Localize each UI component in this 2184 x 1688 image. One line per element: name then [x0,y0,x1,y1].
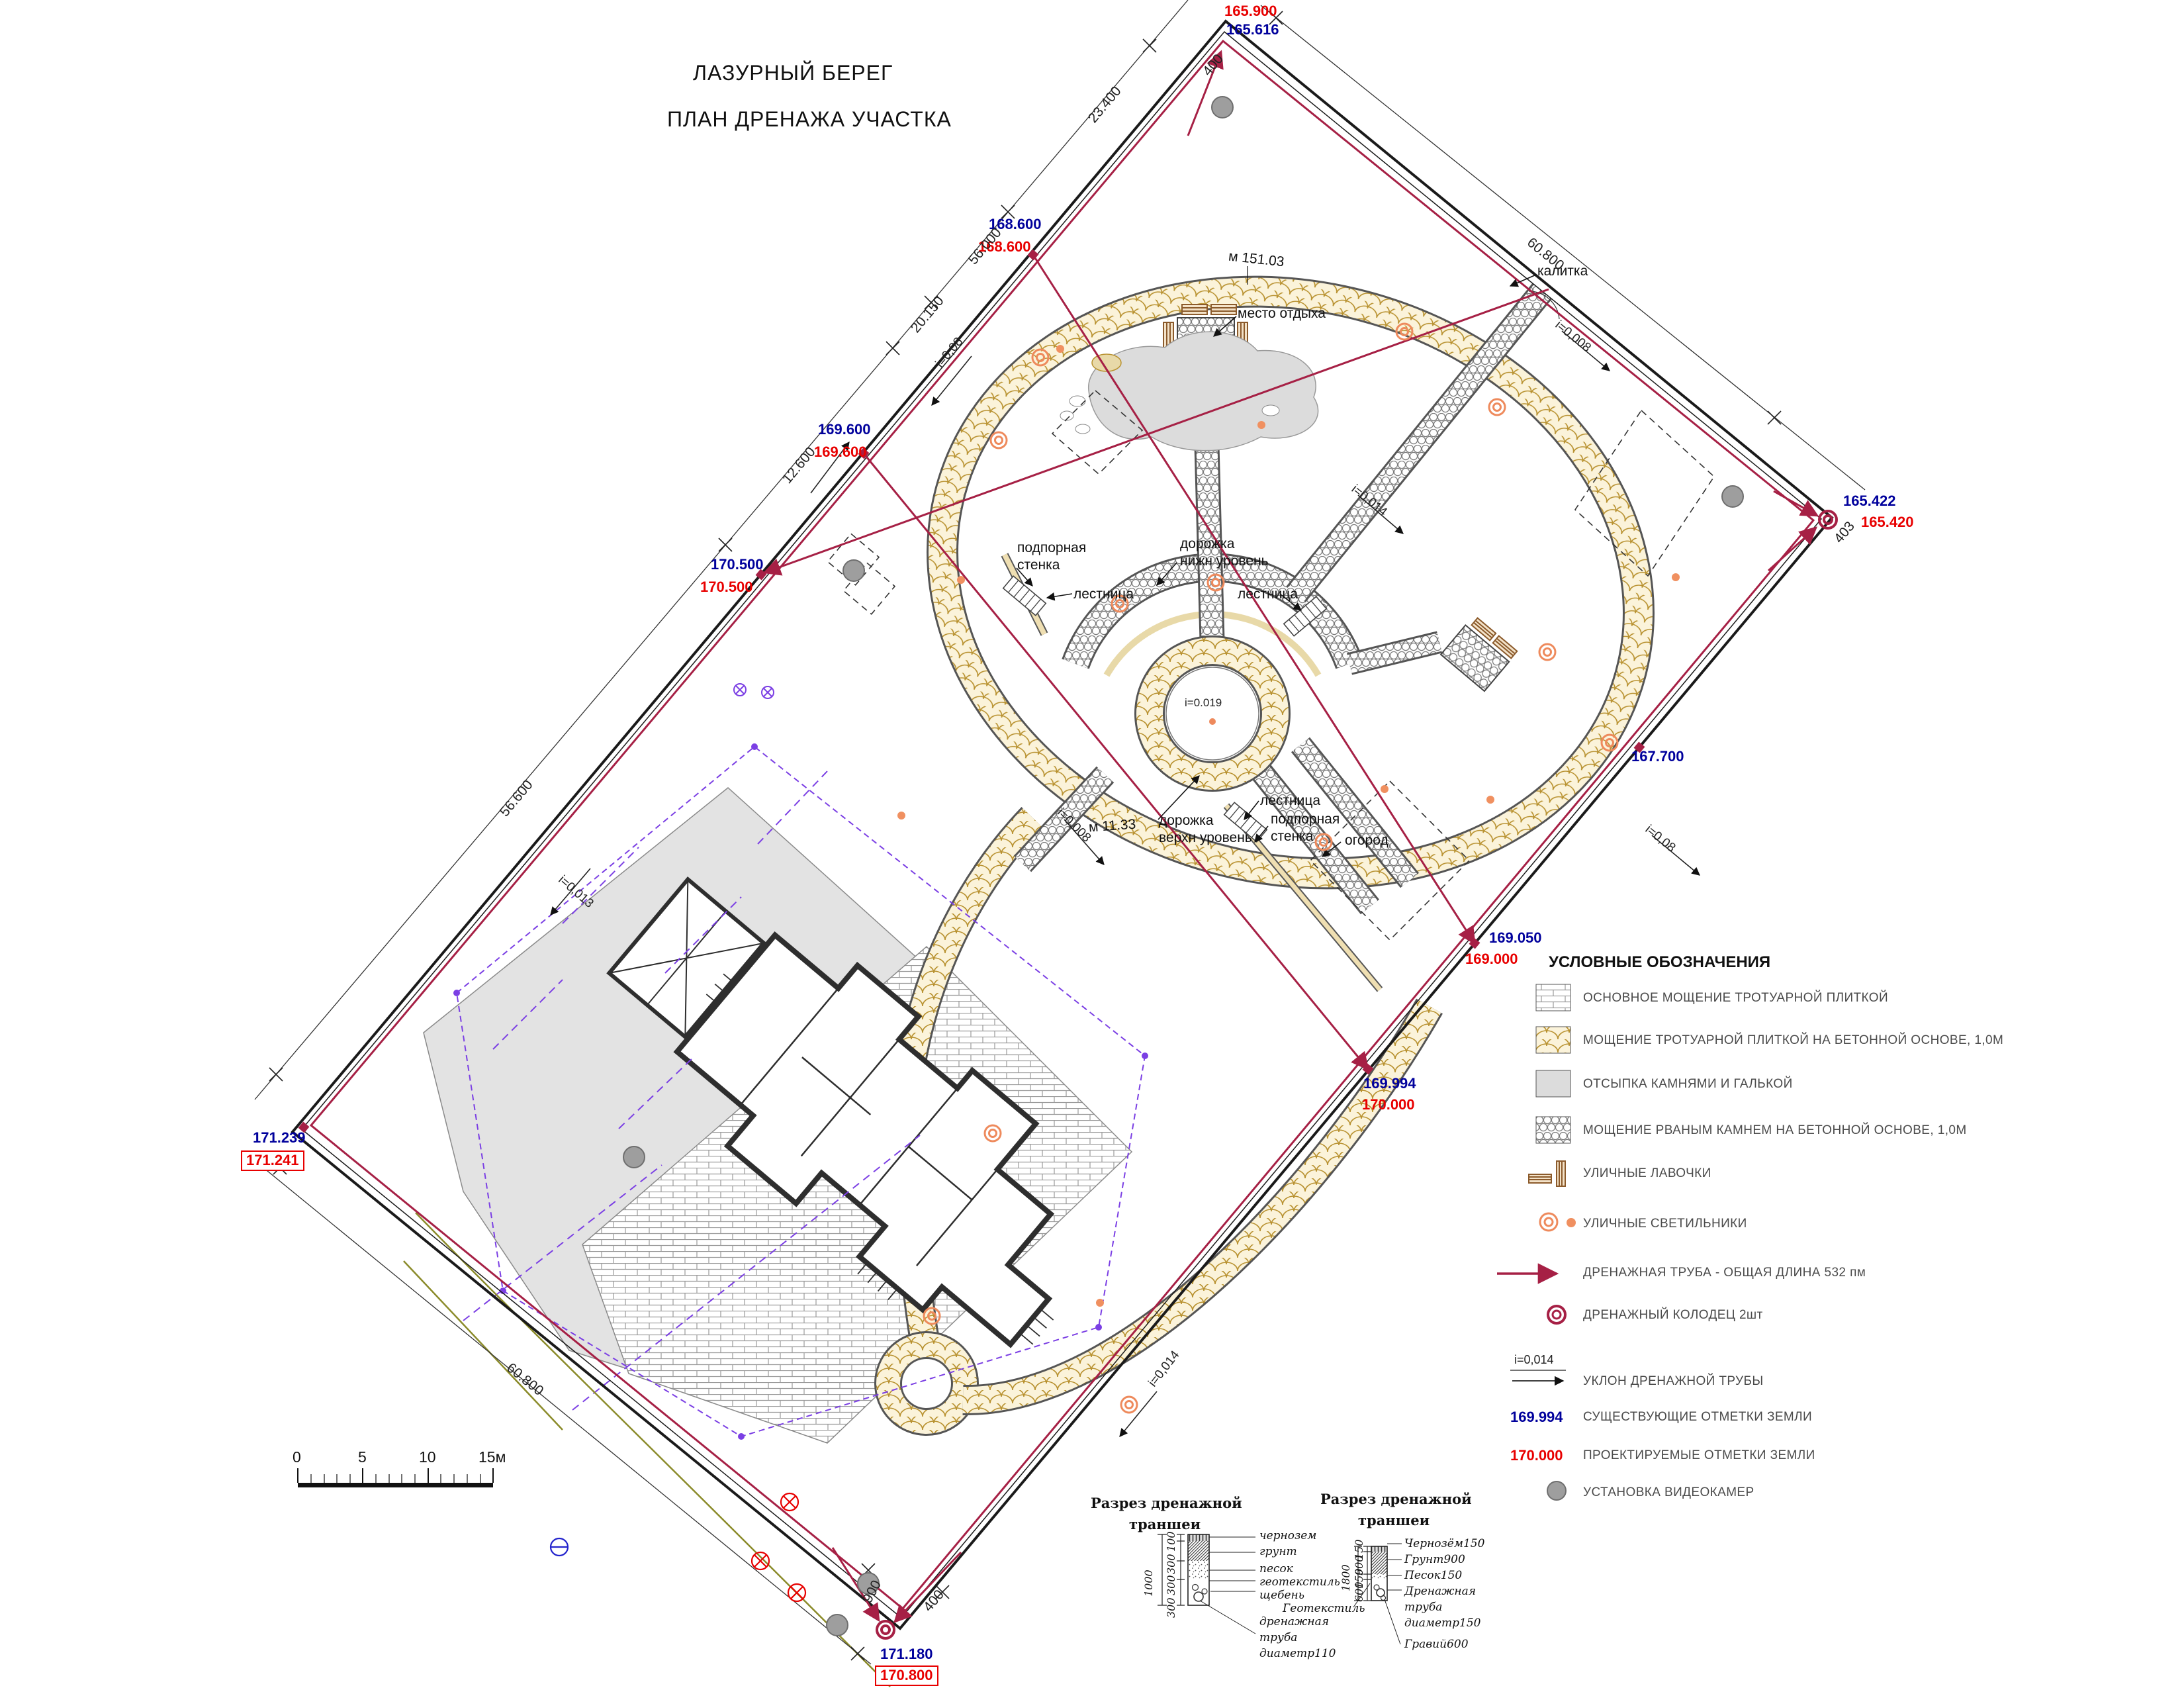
elev-top-design: 165.900 [1224,3,1277,20]
camera-icon [843,560,864,581]
street-light-icon [1121,1397,1137,1413]
label-walk-upper-b: верхн уровень [1159,830,1252,846]
legend-item-label: ДРЕНАЖНЫЙ КОЛОДЕЦ 2шт [1583,1308,1763,1323]
elev-e2-existing: 169.600 [818,421,871,438]
label-retaining-wall-2a: подпорная [1271,812,1340,827]
scalebar-5: 5 [358,1448,367,1466]
sheet-title-line1: ЛАЗУРНЫЙ БЕРЕГ [693,61,893,85]
elev-e6-existing: 167.700 [1631,748,1684,765]
violet-flower-symbol [734,684,774,698]
legend-swatch-brick [1535,984,1571,1011]
legend-item-label: ОСНОВНОЕ МОЩЕНИЕ ТРОТУАРНОЙ ПЛИТКОЙ [1583,991,1888,1006]
elev-e9-existing: 171.180 [880,1646,933,1663]
legend-item-label: УСТАНОВКА ВИДЕОКАМЕР [1583,1485,1754,1500]
legend-title: УСЛОВНЫЕ ОБОЗНАЧЕНИЯ [1549,953,1770,972]
scalebar-15: 15м [478,1448,506,1466]
section2-layer-pesok: Песок150 [1404,1569,1462,1582]
legend-item-label: ДРЕНАЖНАЯ ТРУБА - ОБЩАЯ ДЛИНА 532 пм [1583,1266,1866,1280]
scale-bar [298,1468,493,1487]
elev-e2-design: 169.600 [814,444,867,461]
scalebar-0: 0 [293,1448,301,1466]
section2-layer-chernozem: Чернозём150 [1404,1537,1484,1550]
elev-e8-design: 170.000 [1362,1096,1415,1113]
elev-e7-design: 169.000 [1465,951,1518,968]
camera-icon [827,1615,848,1636]
elev-e3-design: 170.500 [700,579,753,596]
camera-icon [1722,486,1743,507]
legend-item-label: МОЩЕНИЕ ТРОТУАРНОЙ ПЛИТКОЙ НА БЕТОННОЙ О… [1583,1033,2003,1048]
label-vegetable-garden: огород [1345,833,1388,849]
sheet-title-line2: ПЛАН ДРЕНАЖА УЧАСТКА [667,107,952,132]
section1-layer-geotextile: геотекстиль [1259,1575,1340,1589]
label-slope-center: i=0.019 [1185,696,1222,710]
elev-top-existing: 165.616 [1226,21,1279,38]
label-walk-lower-a: дорожка [1180,536,1234,552]
label-retaining-wall-2b: стенка [1271,829,1314,845]
section2-pipe-line2: труба [1404,1601,1442,1614]
legend-swatch-scale [1535,1026,1571,1054]
elev-e7-existing: 169.050 [1489,929,1542,947]
legend-bench-icon [1527,1158,1574,1189]
legend-swatch-hex [1535,1116,1571,1144]
camera-icon [1212,97,1233,118]
legend-item-label: ОТСЫПКА КАМНЯМИ И ГАЛЬКОЙ [1583,1077,1793,1092]
drain-well-icon [877,1621,894,1638]
red-cross-symbol [752,1493,805,1601]
street-light-icon [1539,644,1555,660]
legend-item-label: УЛИЧНЫЕ СВЕТИЛЬНИКИ [1583,1217,1747,1231]
central-circle [1150,651,1275,776]
section2-layer-grunt: Грунт900 [1404,1553,1465,1566]
section2-pipe-line1: Дренажная [1404,1585,1476,1598]
section1-dim2: 300 [1165,1554,1177,1574]
section2-dim-total: 1800 [1340,1564,1352,1591]
street-light-icon [1489,399,1505,415]
street-light-icon [991,432,1007,448]
section1-dim-total: 1000 [1142,1570,1155,1597]
elev-e9-design-boxed: 170.800 [875,1665,938,1686]
section1-layer-chernozem: чернозем [1259,1529,1316,1542]
label-retaining-wall-1a: подпорная [1017,540,1086,556]
rock-garden [1060,332,1318,451]
elev-e4-existing: 171.239 [253,1129,306,1147]
label-stairs-1: лестница [1073,586,1134,602]
legend-existing-value: 169.994 [1510,1409,1563,1426]
section2-layer-geotextile: Геотекстиль [1283,1602,1365,1615]
section1-pipe-line1: дренажная [1259,1615,1329,1628]
label-path-length-1133: м 11.33 [1088,817,1136,836]
section1-pipe-line2: труба [1259,1631,1297,1644]
legend-item-label: УКЛОН ДРЕНАЖНОЙ ТРУБЫ [1583,1374,1764,1389]
section1-title-line2: траншеи [1129,1516,1201,1532]
legend-item-label: СУЩЕСТВУЮЩИЕ ОТМЕТКИ ЗЕМЛИ [1583,1410,1812,1425]
legend-swatch-grey [1535,1070,1571,1098]
label-stairs-2: лестница [1238,586,1298,602]
section1-dim3: 300 [1165,1575,1177,1595]
legend-item-label: УЛИЧНЫЕ ЛАВОЧКИ [1583,1166,1711,1181]
section2-title-line2: траншеи [1358,1512,1430,1528]
legend-light-icon [1537,1210,1586,1234]
legend-well-icon [1545,1303,1569,1327]
section1-layer-shcheben: щебень [1259,1589,1304,1602]
bench-cluster [1441,615,1518,691]
label-retaining-wall-1b: стенка [1017,557,1060,573]
camera-icon [623,1147,645,1168]
section2-title-line1: Разрез дренажной [1320,1491,1472,1507]
elev-e5-design: 165.420 [1861,514,1914,531]
site-plan-drawing [0,0,2184,1688]
section2-layer-gravel: Гравий600 [1404,1638,1469,1651]
elev-e4-design-boxed: 171.241 [241,1150,304,1171]
label-walk-upper-a: дорожка [1159,813,1213,829]
section1-layer-grunt: грунт [1259,1545,1297,1558]
legend-item-label: ПРОЕКТИРУЕМЫЕ ОТМЕТКИ ЗЕМЛИ [1583,1448,1815,1463]
section2-dim4: 600 [1353,1581,1365,1602]
legend-item-label: МОЩЕНИЕ РВАНЫМ КАМНЕМ НА БЕТОННОЙ ОСНОВЕ… [1583,1123,1967,1138]
legend-slope-value: i=0,014 [1514,1353,1554,1367]
section1-dim4: 300 [1165,1597,1177,1618]
section2-pipe-line3: диаметр150 [1404,1617,1480,1630]
stair-icon [1003,576,1046,616]
section1-dim1: 100 [1165,1531,1177,1552]
section1-pipe-line3: диаметр110 [1259,1647,1336,1660]
label-stairs-3: лестница [1260,793,1320,809]
blue-theta-symbol [551,1538,568,1556]
scalebar-10: 10 [419,1448,436,1466]
drainage-plan-sheet: ЛАЗУРНЫЙ БЕРЕГ ПЛАН ДРЕНАЖА УЧАСТКА мест… [0,0,2184,1688]
legend-design-value: 170.000 [1510,1447,1563,1464]
section1-title-line1: Разрез дренажной [1091,1495,1242,1511]
legend-camera-icon [1545,1479,1569,1503]
label-rest-area: место отдыха [1238,306,1326,322]
elev-e5-existing: 165.422 [1843,492,1896,510]
elev-e8-existing: 169.994 [1363,1075,1416,1092]
label-walk-lower-b: нижн уровень [1180,553,1269,569]
elev-e3-existing: 170.500 [711,556,764,573]
section1-layer-pesok: песок [1259,1562,1293,1575]
